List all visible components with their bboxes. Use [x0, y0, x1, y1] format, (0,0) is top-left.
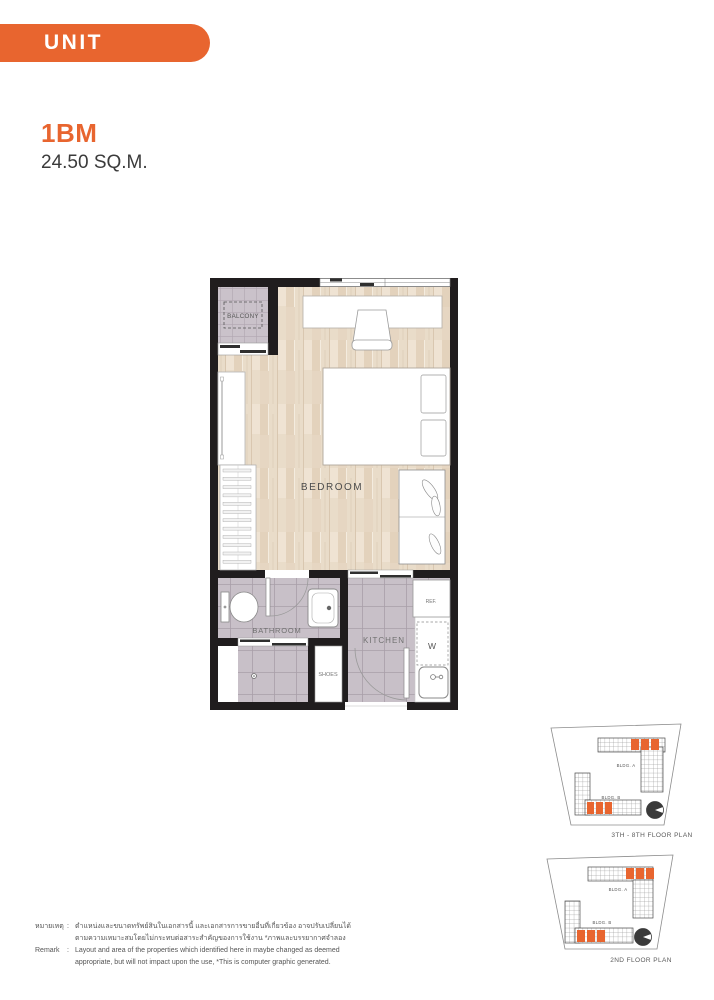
highlighted-units-a: [626, 868, 654, 879]
unit-name: 1BM: [41, 118, 97, 149]
bathroom-label: BATHROOM: [252, 626, 301, 635]
bedroom-label: BEDROOM: [301, 482, 363, 493]
washer-label: W: [428, 641, 436, 651]
sofa: [399, 470, 445, 564]
compass-icon: [635, 929, 652, 946]
remark-line: ตามความเหมาะสมโดยไม่กระทบต่อสาระสำคัญของ…: [75, 933, 351, 945]
compass-icon: [647, 802, 664, 819]
brochure-page: UNIT LAYOUT 1BM 24.50 SQ.M.: [0, 0, 714, 1000]
entry-floor: [238, 646, 310, 702]
entry-door-knob: [252, 674, 257, 679]
bldg-b-label: BLDG. B: [601, 795, 620, 800]
site-plan-lower: BLDG. A BLDG. B: [543, 853, 713, 957]
bldg-b-label: BLDG. B: [592, 920, 611, 925]
remark-block: หมายเหตุ : ตำแหน่งและขนาดทรัพย์สินในเอกส…: [35, 921, 351, 969]
ref-label: REF.: [426, 599, 437, 605]
remark-label-thai: หมายเหตุ: [35, 921, 67, 945]
highlighted-units-a: [631, 739, 659, 750]
floor-plan-caption-upper: 3TH - 8TH FLOOR PLAN: [562, 832, 714, 839]
entry-notch: [218, 646, 238, 702]
unit-layout-badge: UNIT LAYOUT: [0, 24, 210, 62]
wardrobe-slats: [220, 465, 256, 570]
bldg-a-label: BLDG. A: [609, 887, 628, 892]
remark-colon: :: [67, 921, 75, 945]
balcony-label: BALCONY: [227, 313, 259, 320]
remark-colon: :: [67, 945, 75, 969]
chair: [352, 310, 392, 350]
remark-label-english: Remark: [35, 945, 67, 969]
wardrobe-cabinet: [218, 372, 245, 465]
remark-line: ตำแหน่งและขนาดทรัพย์สินในเอกสารนี้ และเอ…: [75, 921, 351, 933]
remark-text: Layout and area of the properties which …: [75, 945, 340, 969]
bathroom-sink: [308, 589, 338, 627]
floor-plan: BALCONY BEDROOM BATHROOM KITCHEN SHOES R…: [208, 276, 460, 712]
remark-row-english: Remark : Layout and area of the properti…: [35, 945, 351, 969]
kitchen-label: KITCHEN: [363, 636, 405, 645]
remark-line: appropriate, but will not impact upon th…: [75, 957, 340, 969]
highlighted-units-b: [577, 930, 605, 942]
kitchen-sink: [419, 667, 448, 698]
unit-area: 24.50 SQ.M.: [41, 152, 148, 174]
bldg-a-label: BLDG. A: [617, 763, 636, 768]
remark-text: ตำแหน่งและขนาดทรัพย์สินในเอกสารนี้ และเอ…: [75, 921, 351, 945]
toilet: [221, 592, 258, 622]
site-plan-upper: BLDG. A BLDG. B: [543, 720, 713, 832]
floor-plan-caption-lower: 2ND FLOOR PLAN: [551, 957, 714, 964]
remark-line: Layout and area of the properties which …: [75, 945, 340, 957]
remark-row-thai: หมายเหตุ : ตำแหน่งและขนาดทรัพย์สินในเอกส…: [35, 921, 351, 945]
shoes-label: SHOES: [318, 672, 338, 678]
highlighted-units-b: [587, 802, 612, 814]
